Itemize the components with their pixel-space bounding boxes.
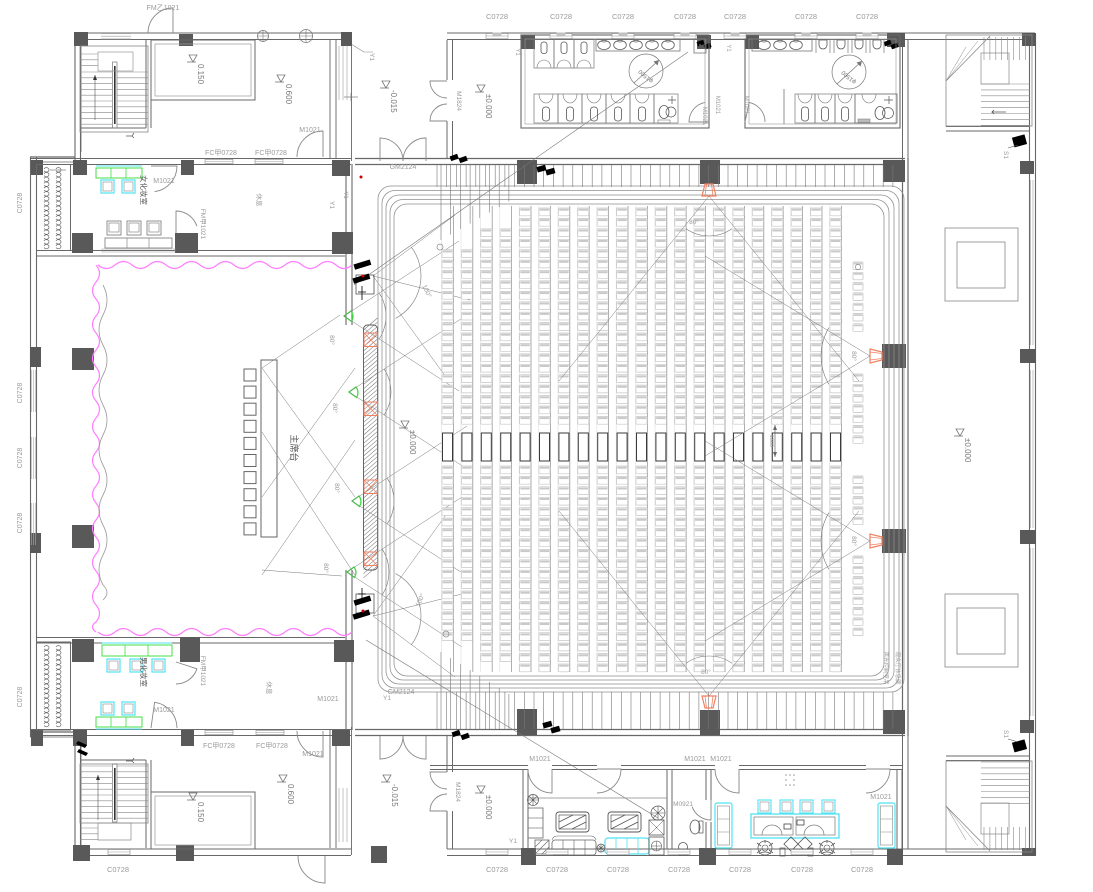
svg-text:±0.000: ±0.000 [484, 795, 493, 820]
svg-text:声光控制室吊: 声光控制室吊 [882, 651, 890, 684]
svg-text:80°: 80° [689, 218, 699, 226]
svg-text:M1021: M1021 [153, 707, 175, 714]
svg-text:Y1: Y1 [383, 695, 391, 702]
svg-text:Y1: Y1 [328, 201, 335, 209]
svg-text:C0728: C0728 [724, 12, 746, 21]
svg-text:80°: 80° [850, 351, 858, 361]
svg-text:C0728: C0728 [612, 12, 634, 21]
svg-text:C0728: C0728 [546, 865, 568, 874]
svg-text:男化妆室: 男化妆室 [139, 657, 149, 687]
svg-text:M1824: M1824 [454, 782, 461, 802]
svg-text:M1021: M1021 [684, 756, 706, 763]
svg-text:Y1: Y1 [368, 53, 375, 61]
svg-text:休息: 休息 [265, 682, 274, 696]
svg-text:C0728: C0728 [17, 383, 24, 404]
svg-text:80°: 80° [322, 563, 330, 573]
svg-text:80°: 80° [333, 483, 341, 493]
svg-text:-0.015: -0.015 [389, 90, 398, 113]
svg-text:M0921: M0921 [673, 801, 693, 808]
svg-text:Y1: Y1 [514, 48, 520, 56]
svg-text:FC甲0728: FC甲0728 [255, 149, 287, 157]
svg-text:C0728: C0728 [851, 865, 873, 874]
svg-text:观众厅休息廊: 观众厅休息廊 [894, 651, 902, 685]
svg-text:0.600: 0.600 [286, 784, 295, 805]
svg-text:C0728: C0728 [486, 865, 508, 874]
svg-text:FC甲0728: FC甲0728 [205, 149, 237, 157]
svg-text:S1: S1 [1002, 151, 1009, 159]
svg-text:M1021: M1021 [701, 107, 707, 126]
svg-text:女化妆室: 女化妆室 [139, 175, 149, 205]
svg-text:80°: 80° [331, 403, 339, 413]
svg-text:M1021: M1021 [302, 751, 324, 758]
svg-text:S1: S1 [1002, 730, 1009, 738]
svg-text:±0.000: ±0.000 [408, 430, 417, 455]
svg-text:C0728: C0728 [17, 687, 24, 708]
svg-text:1300: 1300 [768, 435, 774, 447]
svg-text:GM2124: GM2124 [390, 164, 417, 171]
svg-text:80°: 80° [328, 335, 336, 345]
svg-text:GM2124: GM2124 [388, 689, 415, 696]
svg-text:M1021: M1021 [710, 756, 732, 763]
svg-text:Y1: Y1 [342, 191, 348, 199]
svg-text:M1021: M1021 [714, 96, 720, 115]
svg-text:0.600: 0.600 [284, 84, 293, 105]
svg-text:C0728: C0728 [856, 12, 878, 21]
svg-text:C0728: C0728 [729, 865, 751, 874]
svg-text:0.150: 0.150 [196, 802, 205, 823]
svg-text:C0728: C0728 [107, 865, 129, 874]
svg-text:80°: 80° [701, 668, 711, 676]
svg-text:FC甲0728: FC甲0728 [256, 742, 288, 750]
svg-text:80°: 80° [850, 536, 858, 546]
svg-text:C0728: C0728 [668, 865, 690, 874]
svg-text:C0728: C0728 [486, 12, 508, 21]
svg-text:C0728: C0728 [17, 513, 24, 534]
svg-text:C0728: C0728 [550, 12, 572, 21]
svg-text:C0728: C0728 [795, 12, 817, 21]
svg-text:C0728: C0728 [17, 448, 24, 469]
svg-text:C0728: C0728 [17, 193, 24, 214]
svg-text:C0728: C0728 [791, 865, 813, 874]
svg-text:FM甲1021: FM甲1021 [199, 656, 207, 687]
svg-text:C0728: C0728 [607, 865, 629, 874]
svg-text:M1021: M1021 [317, 696, 339, 703]
svg-text:M1021: M1021 [153, 178, 175, 185]
svg-text:±0.000: ±0.000 [963, 438, 972, 463]
svg-text:FM甲1021: FM甲1021 [199, 209, 207, 240]
svg-text:FM乙1021: FM乙1021 [147, 4, 180, 12]
svg-text:M1021: M1021 [299, 127, 321, 134]
svg-text:0.150: 0.150 [196, 64, 205, 85]
svg-text:Y1: Y1 [509, 838, 517, 845]
svg-text:M1824: M1824 [455, 91, 462, 111]
svg-text:-0.015: -0.015 [390, 784, 399, 807]
svg-text:M1021: M1021 [743, 96, 749, 115]
svg-text:M1021: M1021 [870, 794, 892, 801]
svg-text:休息: 休息 [255, 194, 264, 208]
svg-text:FC甲0728: FC甲0728 [203, 742, 235, 750]
svg-text:±0.000: ±0.000 [484, 94, 493, 119]
svg-text:Y1: Y1 [725, 44, 731, 52]
svg-text:M1021: M1021 [529, 756, 551, 763]
svg-text:C0728: C0728 [674, 12, 696, 21]
